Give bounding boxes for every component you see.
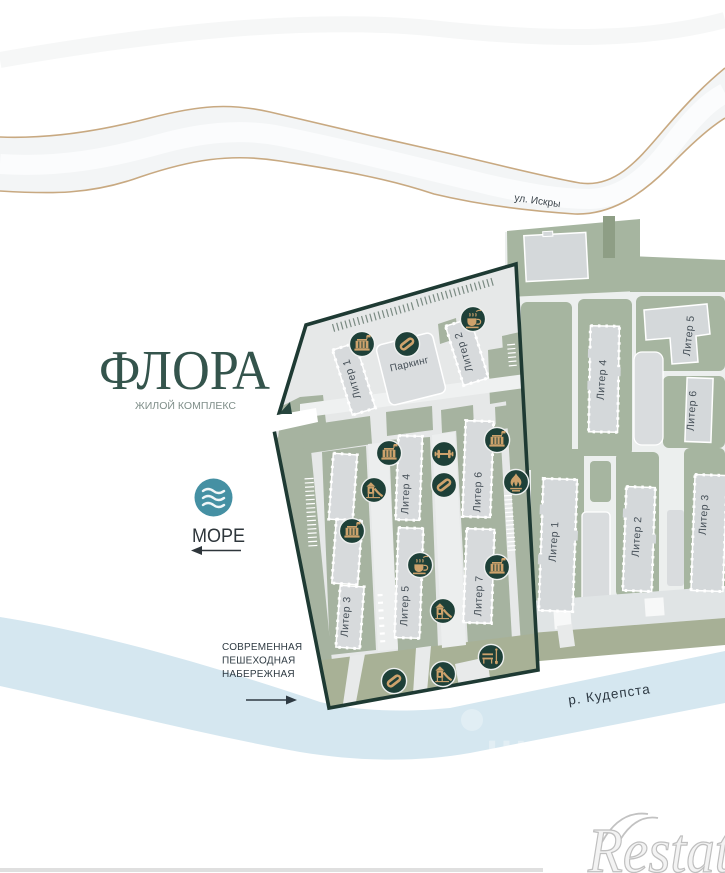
svg-text:СОВРЕМЕННАЯ: СОВРЕМЕННАЯ <box>222 642 302 653</box>
svg-text:Литер 6: Литер 6 <box>471 471 484 512</box>
svg-text:Restate: Restate <box>587 815 725 873</box>
svg-text:Литер 4: Литер 4 <box>399 473 412 514</box>
svg-text:Литер 5: Литер 5 <box>398 585 411 626</box>
svg-text:ЖИЛОЙ КОМПЛЕКС: ЖИЛОЙ КОМПЛЕКС <box>135 399 236 412</box>
svg-text:циан: циан <box>486 725 599 774</box>
svg-text:ПЕШЕХОДНАЯ: ПЕШЕХОДНАЯ <box>222 656 295 667</box>
svg-text:НАБЕРЕЖНАЯ: НАБЕРЕЖНАЯ <box>222 669 295 680</box>
svg-text:ФЛОРА: ФЛОРА <box>99 340 271 402</box>
svg-text:МОРЕ: МОРЕ <box>192 526 245 547</box>
svg-text:Литер 7: Литер 7 <box>472 575 485 616</box>
